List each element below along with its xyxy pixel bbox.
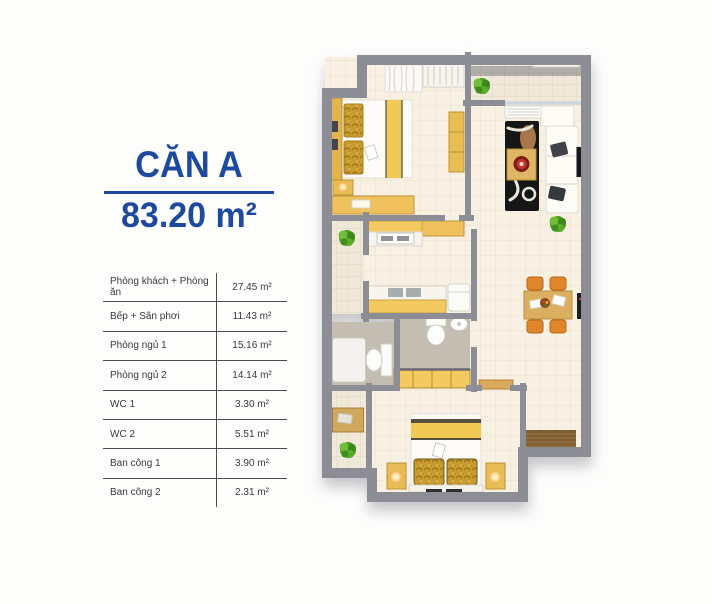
area-table: Phòng khách + Phòng ăn 27.45 m² Bếp + Sâ… [103,273,287,507]
door-sill [479,380,513,389]
table-row: WC 1 3.30 m² [103,391,287,420]
apartment [325,55,591,498]
lamp-glow [338,182,349,193]
room-name: WC 2 [103,420,217,448]
table-row: Ban công 2 2.31 m² [103,479,287,507]
chair [550,320,566,333]
bed2-pillow [414,459,444,485]
room-area: 27.45 m² [217,273,287,301]
sideboard [420,221,464,236]
desk [332,196,414,214]
desk-item [352,200,370,208]
unit-title-block: CĂN A 83.20 m² [98,146,280,235]
counter-top [368,221,422,232]
room-name: Phòng khách + Phòng ăn [103,273,217,301]
room-area: 14.14 m² [217,361,287,389]
bed2-pillow [447,459,477,485]
plant [474,78,491,94]
table-row: Ban công 1 3.90 m² [103,449,287,478]
bed1-runner [386,100,402,178]
wc1-fixtures [333,338,393,382]
room-area: 5.51 m² [217,420,287,448]
room-name: Ban công 2 [103,479,217,507]
tall-cabinet [449,112,464,172]
chair [527,320,543,333]
shower-tray [333,338,366,382]
toilet-bowl [427,325,445,345]
plant [340,442,357,458]
toilet-tank [381,344,392,376]
floorplan-render [298,28,622,532]
sofa-chaise [541,106,574,126]
sink-basin [388,288,403,297]
unit-name: CĂN A [104,146,273,184]
room-name: WC 1 [103,391,217,419]
table-row: WC 2 5.51 m² [103,420,287,449]
table-row: Bếp + Sân phơi 11.43 m² [103,302,287,331]
room-area: 2.31 m² [217,479,287,507]
chair [550,277,566,290]
fridge [448,284,470,311]
room-name: Phòng ngủ 2 [103,361,217,389]
room-area: 3.30 m² [217,391,287,419]
page: { "panel": { "unit_name": "CĂN A", "unit… [0,0,712,604]
lamp-glow [488,470,502,484]
sink-basin [406,288,421,297]
entry-mat [524,430,576,449]
room-name: Phòng ngủ 1 [103,332,217,360]
placemat [529,299,541,309]
table-row: Phòng khách + Phòng ăn 27.45 m² [103,273,287,302]
plant [550,216,567,232]
lamp-glow [389,470,403,484]
bed1-pillow [344,141,363,174]
room-name: Ban công 1 [103,449,217,477]
table-row: Phòng ngủ 1 15.16 m² [103,332,287,361]
bench-item [337,413,352,424]
room-name: Bếp + Sân phơi [103,302,217,330]
table-row: Phòng ngủ 2 14.14 m² [103,361,287,390]
title-divider [104,191,274,194]
room-area: 15.16 m² [217,332,287,360]
room-area: 3.90 m² [217,449,287,477]
room-area: 11.43 m² [217,302,287,330]
chair [527,277,543,290]
bed1-pillow [344,104,363,137]
plant [339,230,356,246]
toilet-bowl [366,349,382,371]
bed2-runner [411,423,481,438]
unit-total-area: 83.20 m² [101,197,278,235]
